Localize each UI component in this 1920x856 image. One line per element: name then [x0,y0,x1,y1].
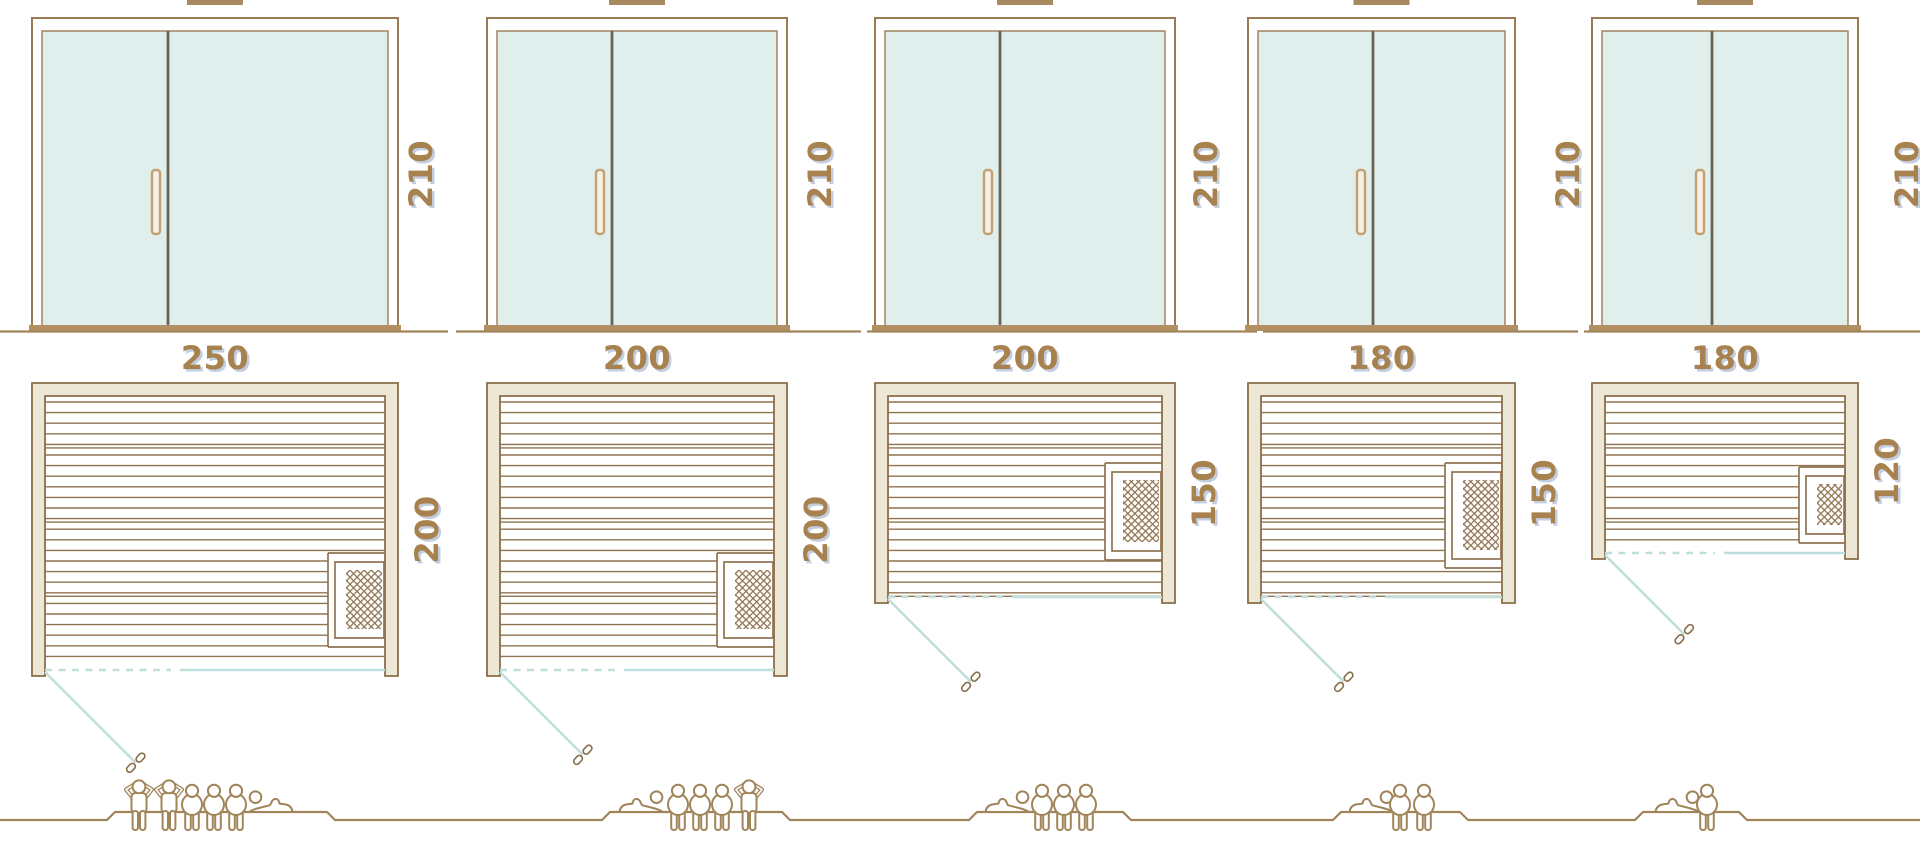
figure-head [230,785,242,797]
capacity-figures-sauna-180x150 [1350,785,1435,830]
floor-plan-view [32,383,398,774]
door-height-label: 210210 [1549,140,1589,211]
capacity-figures-sauna-200x200 [620,780,763,830]
door-threshold [872,325,1178,331]
heater-icon [328,553,385,647]
sauna-column-sauna-200x150: 210210200200150150 [867,0,1257,693]
plan-depth-label: 150150 [1185,459,1225,530]
person-sitting-icon [1697,785,1717,830]
figure-head [250,791,262,803]
heater-icon [1105,463,1162,560]
door-swing-line [1605,555,1684,634]
figure-head [186,785,198,797]
roof-vent-icon [997,0,1053,5]
figure-head [163,780,176,793]
figure-head [1701,785,1713,797]
sauna-column-sauna-200x200: 210210200200200200 [456,0,861,766]
floor-plan-view [1592,383,1858,645]
person-sitting-icon [668,785,688,830]
glass-door-left [1258,31,1373,326]
figure-head [1080,785,1092,797]
diagram-canvas: 2102102502502002002102102002002002002102… [0,0,1920,856]
plan-depth-label: 200200 [408,495,448,566]
figure-head [743,780,756,793]
figure-head [672,785,684,797]
floor-plan-view [1248,383,1515,693]
figure-head [208,785,220,797]
figure-leg [133,811,138,830]
figure-leg [750,811,755,830]
heater-crosshatch [1123,480,1159,542]
svg-text:180: 180 [1691,339,1759,377]
glass-door-left [497,31,612,326]
figure-head [1394,785,1406,797]
plan-depth-label: 150150 [1525,459,1565,530]
person-sitting-icon [712,785,732,830]
heater-icon [717,553,774,647]
glass-door-left [885,31,1000,326]
figure-leg [140,811,145,830]
person-lying-icon [1350,791,1394,812]
door-handle-icon [1696,170,1704,234]
figure-head [1036,785,1048,797]
door-threshold [1589,325,1861,331]
door-swing-line [888,599,971,682]
door-front-view [1245,0,1578,332]
svg-text:200: 200 [991,339,1059,377]
door-swing-line [500,672,583,755]
person-sitting-icon [690,785,710,830]
svg-text:120: 120 [1868,437,1906,505]
capacity-figures-sauna-200x150 [986,785,1097,830]
door-height-label: 210210 [801,140,841,211]
svg-text:150: 150 [1525,459,1563,527]
svg-text:200: 200 [797,495,835,563]
svg-text:180: 180 [1347,339,1415,377]
person-lying-icon [249,791,293,812]
person-standing-icon [156,780,182,830]
sauna-column-sauna-250x200: 210210250250200200 [0,0,448,774]
floor-plan-view [487,383,787,766]
figure-head [716,785,728,797]
person-sitting-icon [204,785,224,830]
heater-crosshatch [1817,484,1842,525]
door-handle-icon [984,170,992,234]
heater-crosshatch [346,570,382,629]
person-lying-icon [986,791,1030,812]
glass-door-right [612,31,777,326]
door-front-view [0,0,448,332]
roof-vent-icon [609,0,665,5]
figure-head [694,785,706,797]
plan-width-label: 200200 [603,339,674,379]
person-lying-icon [1656,791,1700,812]
capacity-figures-sauna-250x200 [126,780,293,830]
svg-text:210: 210 [1187,140,1225,208]
person-standing-icon [126,780,152,830]
figure-head [133,780,146,793]
roof-vent-icon [1697,0,1753,5]
person-sitting-icon [1390,785,1410,830]
capacity-figures-sauna-180x120 [1656,785,1718,830]
person-lying-icon [620,791,664,812]
plan-width-label: 180180 [1691,339,1762,379]
figure-head [1017,791,1029,803]
svg-text:200: 200 [408,495,446,563]
door-threshold [1245,325,1518,331]
sauna-size-diagram: 2102102502502002002102102002002002002102… [0,0,1920,856]
person-standing-icon [736,780,762,830]
roof-vent-icon [187,0,243,5]
roof-vent-icon [1354,0,1410,5]
plan-width-label: 200200 [991,339,1062,379]
glass-door-right [1373,31,1505,326]
figure-leg [743,811,748,830]
svg-text:210: 210 [402,140,440,208]
plan-depth-label: 120120 [1868,437,1908,508]
glass-door-right [1712,31,1848,326]
sauna-column-sauna-180x120: 210210180180120120 [1584,0,1920,645]
capacity-ground-line [0,812,1920,820]
svg-text:210: 210 [1888,140,1920,208]
door-handle-icon [152,170,160,234]
figure-leg [163,811,168,830]
person-sitting-icon [226,785,246,830]
svg-text:210: 210 [801,140,839,208]
glass-door-left [42,31,168,326]
glass-door-right [1000,31,1165,326]
door-height-label: 210210 [1187,140,1227,211]
heater-icon [1445,463,1502,568]
glass-door-right [168,31,388,326]
door-height-label: 210210 [1888,140,1920,211]
svg-text:250: 250 [181,339,249,377]
person-sitting-icon [1414,785,1434,830]
heater-crosshatch [1463,480,1499,550]
svg-text:210: 210 [1549,140,1587,208]
person-sitting-icon [182,785,202,830]
sauna-column-sauna-180x150: 210210180180150150 [1245,0,1589,693]
floor-plan-view [875,383,1175,693]
plan-depth-label: 200200 [797,495,837,566]
door-handle-icon [596,170,604,234]
person-sitting-icon [1032,785,1052,830]
figure-leg [170,811,175,830]
door-swing-line [45,672,136,763]
plan-width-label: 250250 [181,339,252,379]
figure-head [1058,785,1070,797]
figure-head [1418,785,1430,797]
person-sitting-icon [1076,785,1096,830]
plan-width-label: 180180 [1347,339,1418,379]
door-height-label: 210210 [402,140,442,211]
person-sitting-icon [1054,785,1074,830]
door-swing-line [1261,599,1344,682]
figure-head [651,791,663,803]
heater-crosshatch [735,570,771,629]
svg-text:150: 150 [1185,459,1223,527]
plan-bench-slats [45,402,385,656]
svg-text:200: 200 [603,339,671,377]
door-threshold [29,325,401,331]
door-handle-icon [1357,170,1365,234]
heater-icon [1799,467,1845,543]
door-threshold [484,325,790,331]
door-front-view [1584,0,1920,332]
